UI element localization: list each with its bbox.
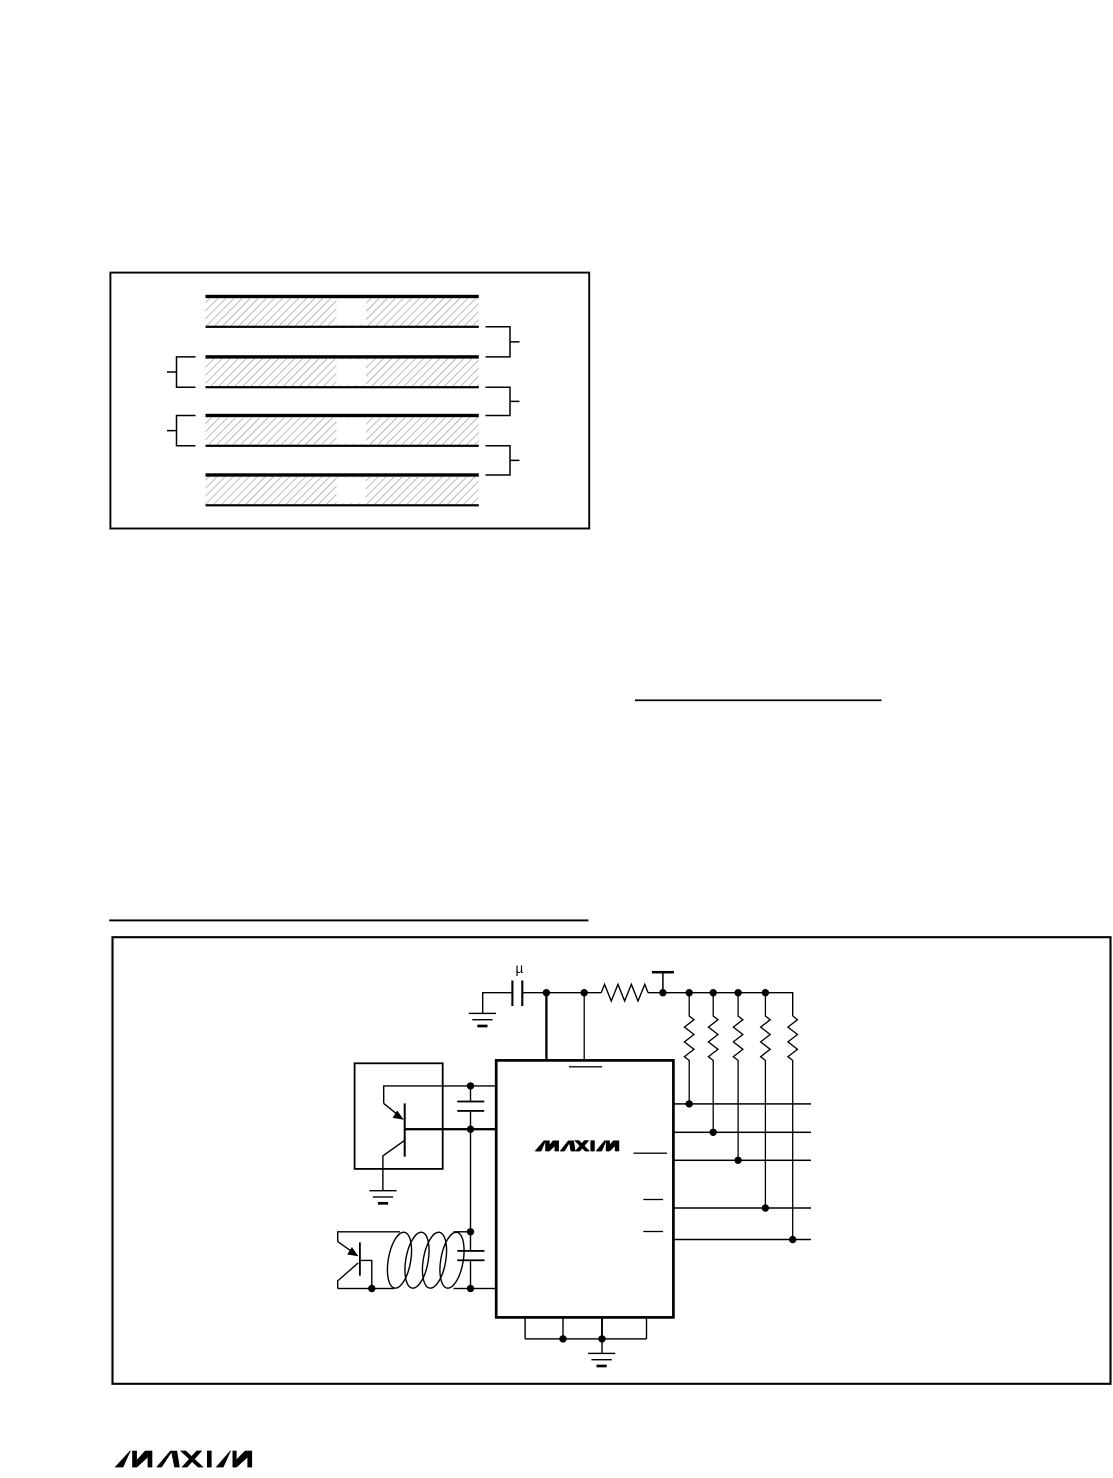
svg-text:µ: µ: [516, 961, 524, 976]
